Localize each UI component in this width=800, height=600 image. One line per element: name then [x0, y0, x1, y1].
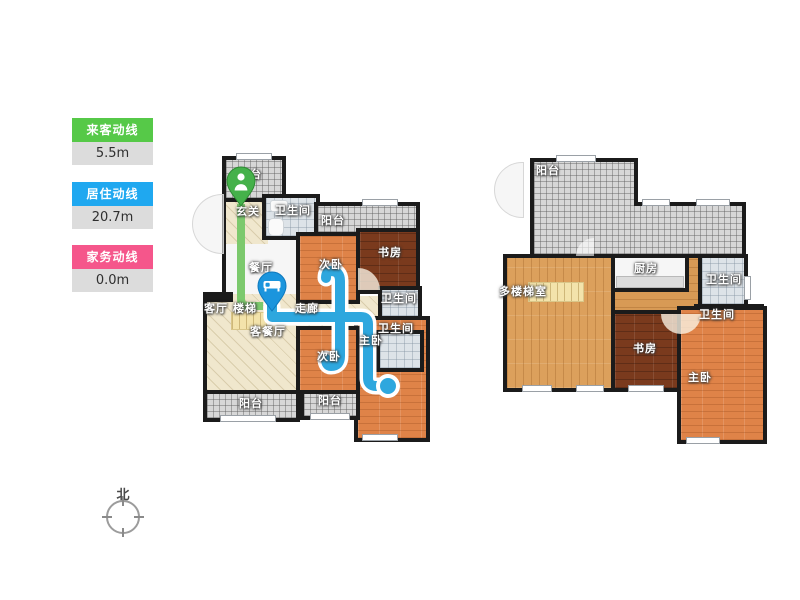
room-label-stairs: 楼梯	[233, 300, 257, 316]
legend-visitor-route: 来客动线 5.5m	[72, 118, 153, 165]
balcony-door-swing	[494, 162, 524, 218]
legend-housework-label: 家务动线	[72, 245, 153, 269]
room-label-living: 客厅	[204, 300, 228, 316]
window	[696, 199, 730, 206]
room-label-corridor: 走廊	[295, 300, 319, 316]
window	[310, 413, 350, 420]
kitchen-counter	[616, 276, 684, 288]
room-label-balcony-bm: 阳台	[318, 392, 342, 408]
room-label-dining: 餐厅	[249, 259, 273, 275]
window	[686, 437, 720, 444]
room-label-study-right: 书房	[633, 340, 657, 356]
room-label-bathroom-mid: 卫生间	[381, 290, 417, 306]
room-label-bathroom-r1: 卫生间	[706, 271, 742, 287]
room-label-multi-stairwell: 多楼梯室	[499, 283, 547, 299]
legend-visitor-value: 5.5m	[72, 142, 153, 165]
room-label-master-left: 主卧	[359, 332, 383, 348]
room-label-balcony: 阳台	[238, 166, 262, 182]
legend-resident-label: 居住动线	[72, 182, 153, 206]
room-label-entry: 玄关	[236, 203, 260, 219]
compass-north-label: 北	[112, 484, 134, 503]
window	[220, 415, 276, 422]
window	[576, 385, 604, 392]
window	[362, 199, 398, 206]
legend-visitor-label: 来客动线	[72, 118, 153, 142]
window	[236, 153, 272, 160]
room-label-master-right: 主卧	[688, 369, 712, 385]
room-balcony-right-ext	[634, 202, 746, 258]
window	[556, 155, 596, 162]
floorplan-viewer: 来客动线 5.5m 居住动线 20.7m 家务动线 0.0m 阳台 玄关 卫生间…	[0, 0, 800, 600]
entry-door-swing	[192, 194, 224, 254]
room-label-bathroom-r2: 卫生间	[699, 306, 735, 322]
toilet-fixture	[268, 218, 284, 236]
room-label-bathroom-top: 卫生间	[275, 202, 311, 218]
window	[362, 434, 398, 441]
window	[522, 385, 552, 392]
window	[744, 276, 751, 300]
room-bathroom-bottom	[376, 330, 424, 372]
room-label-living-dining: 客餐厅	[250, 323, 286, 339]
room-label-balcony-right: 阳台	[536, 162, 560, 178]
room-label-balcony-2: 阳台	[321, 212, 345, 228]
window	[642, 199, 670, 206]
room-label-bathroom-bottom: 卫生间	[378, 320, 414, 336]
window	[628, 385, 664, 392]
room-label-bedroom2-top: 次卧	[319, 256, 343, 272]
legend-resident-route: 居住动线 20.7m	[72, 182, 153, 229]
room-label-kitchen: 厨房	[634, 260, 658, 276]
room-label-bedroom2-bottom: 次卧	[317, 348, 341, 364]
legend-housework-value: 0.0m	[72, 269, 153, 292]
room-multi-stairwell	[503, 254, 615, 392]
room-label-balcony-bl: 阳台	[239, 395, 263, 411]
room-label-study-left: 书房	[378, 244, 402, 260]
legend-housework-route: 家务动线 0.0m	[72, 245, 153, 292]
legend-resident-value: 20.7m	[72, 206, 153, 229]
